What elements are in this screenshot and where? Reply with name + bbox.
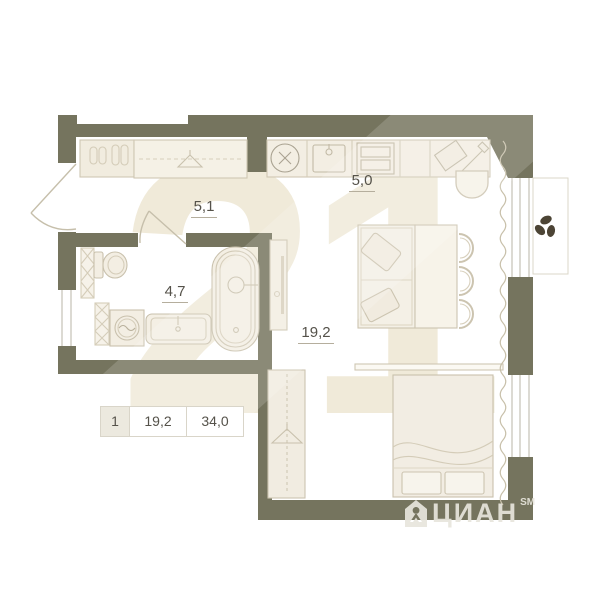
bathtub [212,247,259,351]
window-right-lower [508,375,533,457]
wall-top-niche [77,113,188,124]
wall-hall-pier [247,137,267,172]
vanity-sink [146,314,211,344]
hall-furniture [80,140,247,178]
dining-table [415,225,457,328]
bed-pillow [402,472,441,494]
tv-unit [270,240,287,330]
window-right-upper [508,178,533,277]
wall-bottom [258,500,533,520]
wall-bathroom-top-a [76,233,138,247]
room-label-living: 19,2 [290,324,342,344]
rooms-count-cell: 1 [100,406,130,437]
room-label-hallway: 5,1 [180,198,228,218]
wall-bathroom-bottom [58,360,272,374]
living-area-cell: 19,2 [129,406,187,437]
floor-plan: 21 [0,0,600,600]
balcony [533,178,568,274]
washing-machine [110,310,144,346]
entrance-door [31,164,76,230]
toilet [94,252,127,278]
kitchen-chair [456,171,488,198]
area-summary-table: 1 19,2 34,0 [100,406,244,437]
sofa [358,225,415,328]
storage-shelf-upper [81,248,94,298]
storage-shelf-lower [95,303,109,345]
room-label-bathroom: 4,7 [151,283,199,303]
shoe-cabinet [80,140,134,177]
curtain-line [500,141,506,505]
living-wardrobe [268,370,305,498]
wall-right-bottom [508,457,533,520]
console-shelf [355,364,503,370]
hall-wardrobe [134,140,247,178]
total-area-cell: 34,0 [186,406,244,437]
bed-pillow [445,472,484,494]
dining-chairs [459,234,473,328]
wall-left-upper [58,137,76,163]
floor-plan-drawing [0,0,600,600]
living-furniture [268,225,503,498]
window-bathroom-left [58,290,76,346]
wall-right-pier [508,277,533,375]
wall-right-top [508,137,533,178]
bed [393,375,493,497]
room-label-kitchen: 5,0 [338,172,386,192]
